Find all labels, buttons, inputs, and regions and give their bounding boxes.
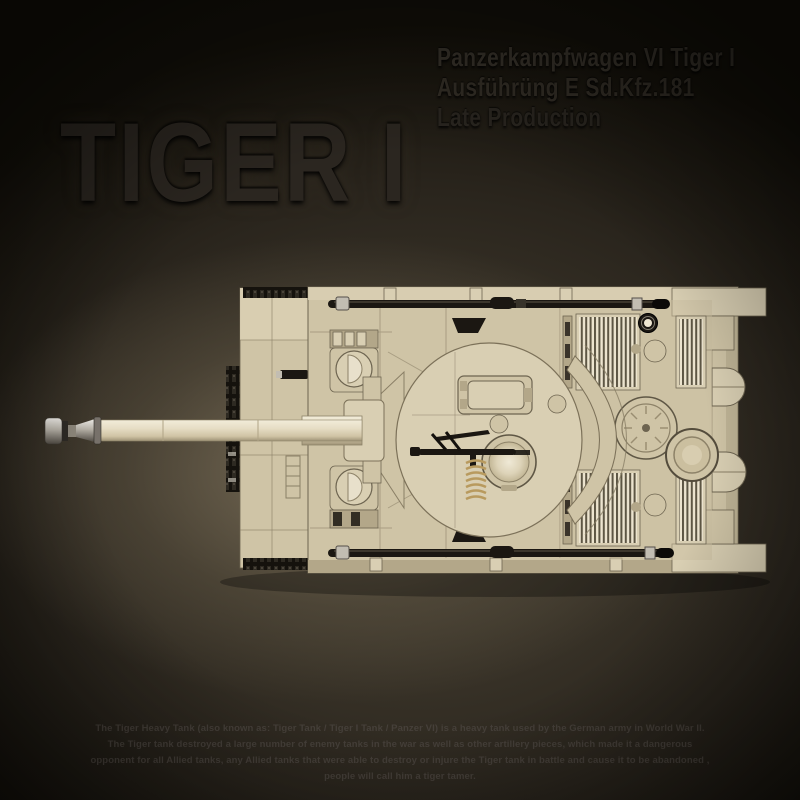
fuel-filler-ring <box>666 429 718 481</box>
deck-small-stud-bottom <box>631 502 641 512</box>
spare-track-strip-top <box>243 287 313 298</box>
periscope <box>639 314 658 333</box>
tow-clevis <box>276 370 308 379</box>
exhaust-top <box>712 368 745 406</box>
spare-track-strip-bottom <box>243 558 313 570</box>
tank-photo <box>0 0 800 800</box>
tank-top-view-illustration <box>0 0 800 800</box>
gun-barrel <box>92 416 362 445</box>
muzzle-brake <box>45 417 101 444</box>
loader-hatch <box>458 376 532 414</box>
turret-stud-rear <box>548 395 566 413</box>
deck-stud-bottom <box>644 494 666 516</box>
turret-stud <box>490 415 508 433</box>
deck-small-stud-top <box>631 344 641 354</box>
deck-stud-top <box>644 340 666 362</box>
product-description: The Tiger Heavy Tank (also known as: Tig… <box>88 721 712 786</box>
engine-deck <box>560 300 718 560</box>
product-poster: TIGER I Panzerkampfwagen VI Tiger I Ausf… <box>0 0 800 800</box>
